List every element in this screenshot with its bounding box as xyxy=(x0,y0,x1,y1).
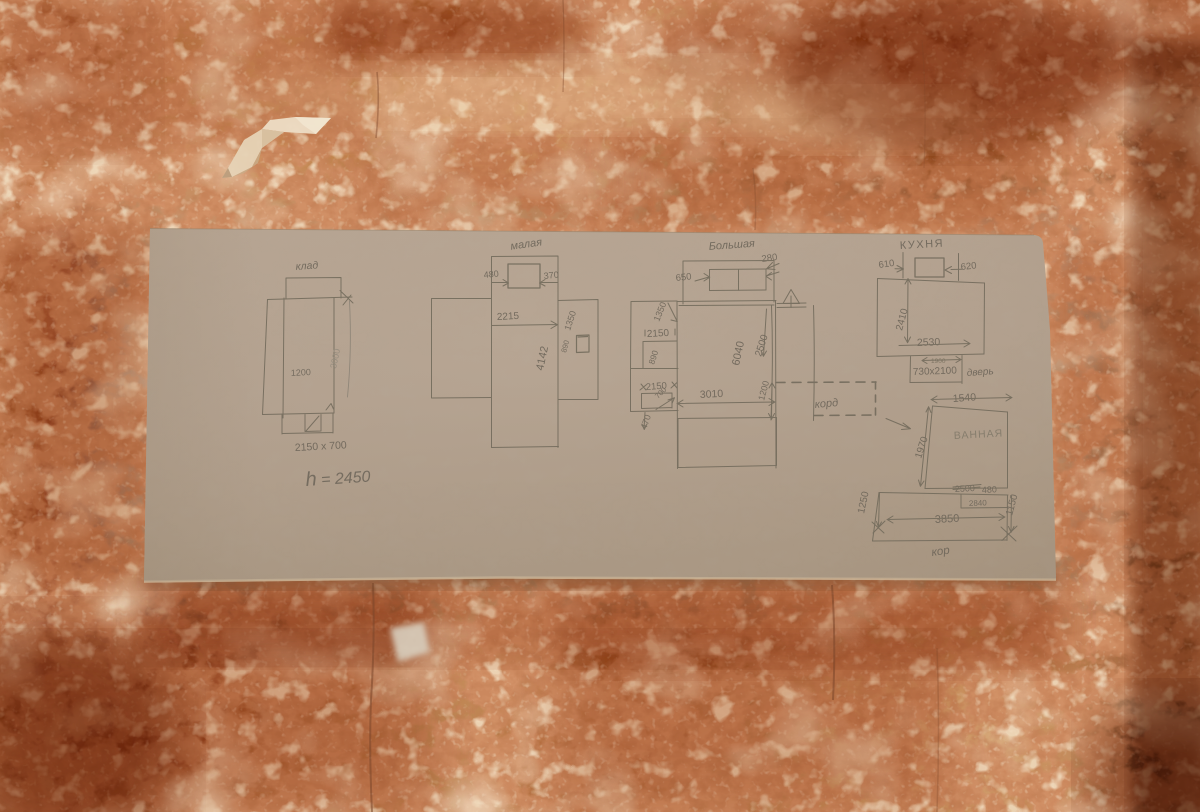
svg-text:дверь: дверь xyxy=(966,366,994,379)
svg-text:2840: 2840 xyxy=(969,498,988,508)
svg-text:280: 280 xyxy=(761,252,778,265)
svg-text:730х2100: 730х2100 xyxy=(913,365,958,378)
svg-text:620: 620 xyxy=(960,260,977,273)
svg-text:480: 480 xyxy=(982,484,998,495)
svg-text:2530: 2530 xyxy=(917,336,941,349)
svg-text:2150: 2150 xyxy=(647,328,670,340)
svg-text:480: 480 xyxy=(483,268,499,280)
svg-text:650: 650 xyxy=(675,271,692,284)
svg-text:370: 370 xyxy=(543,269,559,281)
svg-text:3850: 3850 xyxy=(935,513,960,526)
svg-text:3010: 3010 xyxy=(700,388,724,401)
svg-text:610: 610 xyxy=(878,258,895,271)
svg-text:клад: клад xyxy=(295,259,319,273)
svg-text:2215: 2215 xyxy=(497,311,520,323)
svg-text:КУХНЯ: КУХНЯ xyxy=(900,238,945,252)
svg-text:1200: 1200 xyxy=(291,367,312,378)
svg-text:1900: 1900 xyxy=(931,358,946,365)
svg-text:корд: корд xyxy=(814,397,838,411)
